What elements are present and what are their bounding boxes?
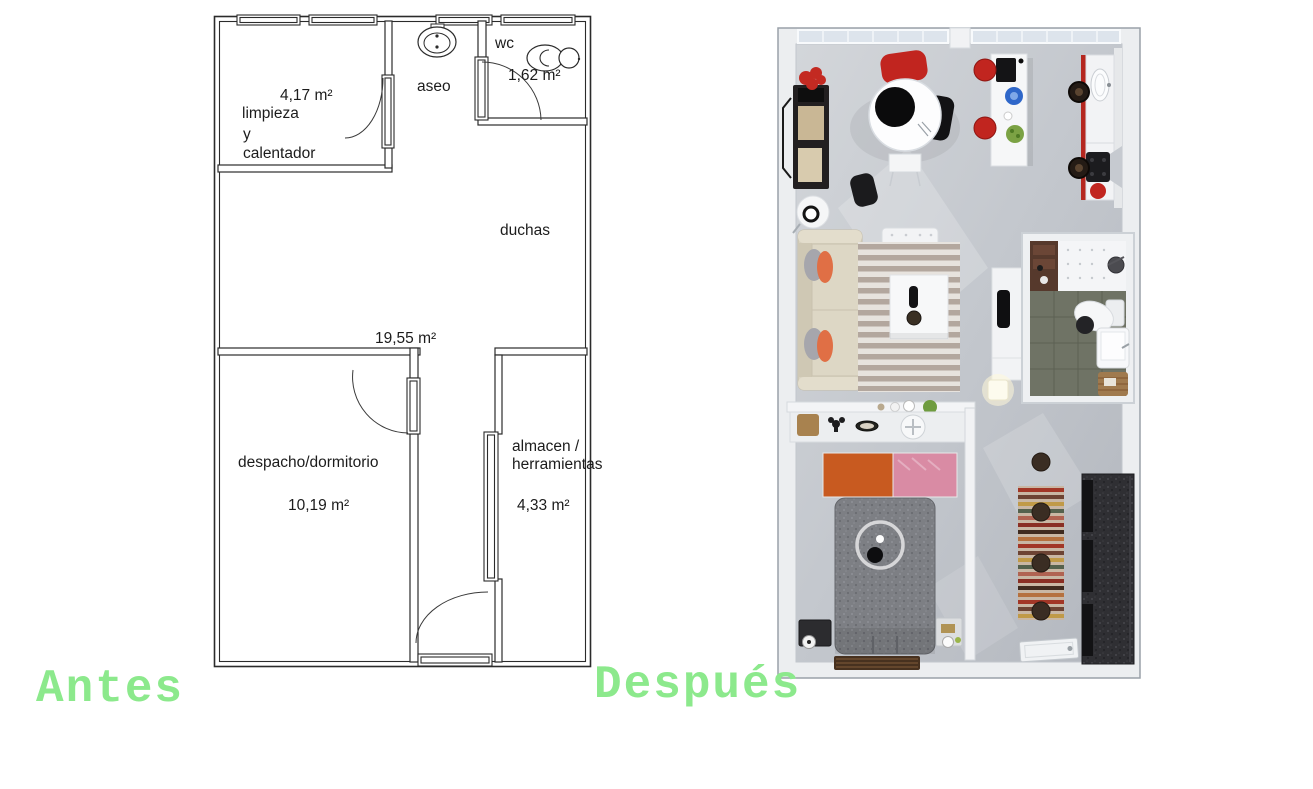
sink-symbol <box>418 24 456 57</box>
wardrobe <box>1082 474 1134 664</box>
coffee-machine <box>996 58 1016 82</box>
nightstand-right <box>936 618 962 648</box>
render-after <box>778 28 1140 678</box>
floor-cushion <box>1032 554 1050 572</box>
plant <box>1006 125 1024 143</box>
room-label-aseo: aseo <box>417 78 451 95</box>
room-label-wc: wc <box>494 35 514 52</box>
room-label-duchas: duchas <box>500 222 550 239</box>
orange-pillow <box>817 251 833 283</box>
before-after-floorplan-image: 4,17 m² limpieza y calentador aseo wc 1,… <box>0 0 1313 789</box>
bedroom-wall <box>965 408 975 660</box>
remote <box>909 286 918 308</box>
red-stool <box>974 59 996 81</box>
floor-cushion <box>1032 602 1050 620</box>
area-despacho: 10,19 m² <box>288 497 349 514</box>
room-label-limpieza-3: calentador <box>243 145 315 162</box>
area-duchas: 19,55 m² <box>375 330 436 347</box>
shower-head <box>1108 257 1124 273</box>
light-switch <box>982 374 1014 406</box>
tv <box>997 290 1010 328</box>
nightstand-left <box>799 620 831 649</box>
orange-art <box>823 453 893 497</box>
floor-cushion <box>1032 503 1050 521</box>
bathroom <box>1022 233 1134 403</box>
area-almacen: 4,33 m² <box>517 497 570 514</box>
pink-art <box>893 453 957 497</box>
coffee-table <box>890 275 948 339</box>
stool <box>797 414 819 436</box>
laundry-hamper <box>1098 372 1128 396</box>
orange-pillow <box>817 330 833 362</box>
red-stool <box>974 117 996 139</box>
room-labels: 4,17 m² limpieza y calentador aseo wc 1,… <box>238 35 603 514</box>
bedroom-counter <box>790 412 968 442</box>
entrance-door <box>1019 638 1078 662</box>
door-leaves <box>382 57 498 666</box>
tv-console <box>992 268 1026 380</box>
bedside-mat <box>834 656 920 670</box>
after-caption: Después <box>594 662 801 708</box>
room-label-limpieza-1: limpieza <box>242 105 299 122</box>
area-limpieza: 4,17 m² <box>280 87 333 104</box>
room-label-limpieza-2: y <box>243 126 251 143</box>
area-wc: 1,62 m² <box>508 67 561 84</box>
bathroom-sink <box>1097 328 1129 368</box>
before-caption: Antes <box>36 666 184 712</box>
room-label-almacen-2: herramientas <box>512 456 603 473</box>
room-label-despacho: despacho/dormitorio <box>238 454 378 471</box>
room-label-almacen-1: almacen / <box>512 438 580 455</box>
sofa <box>798 230 862 390</box>
floor-plan-before: 4,17 m² limpieza y calentador aseo wc 1,… <box>213 14 593 670</box>
floor-cushion <box>1032 453 1050 471</box>
